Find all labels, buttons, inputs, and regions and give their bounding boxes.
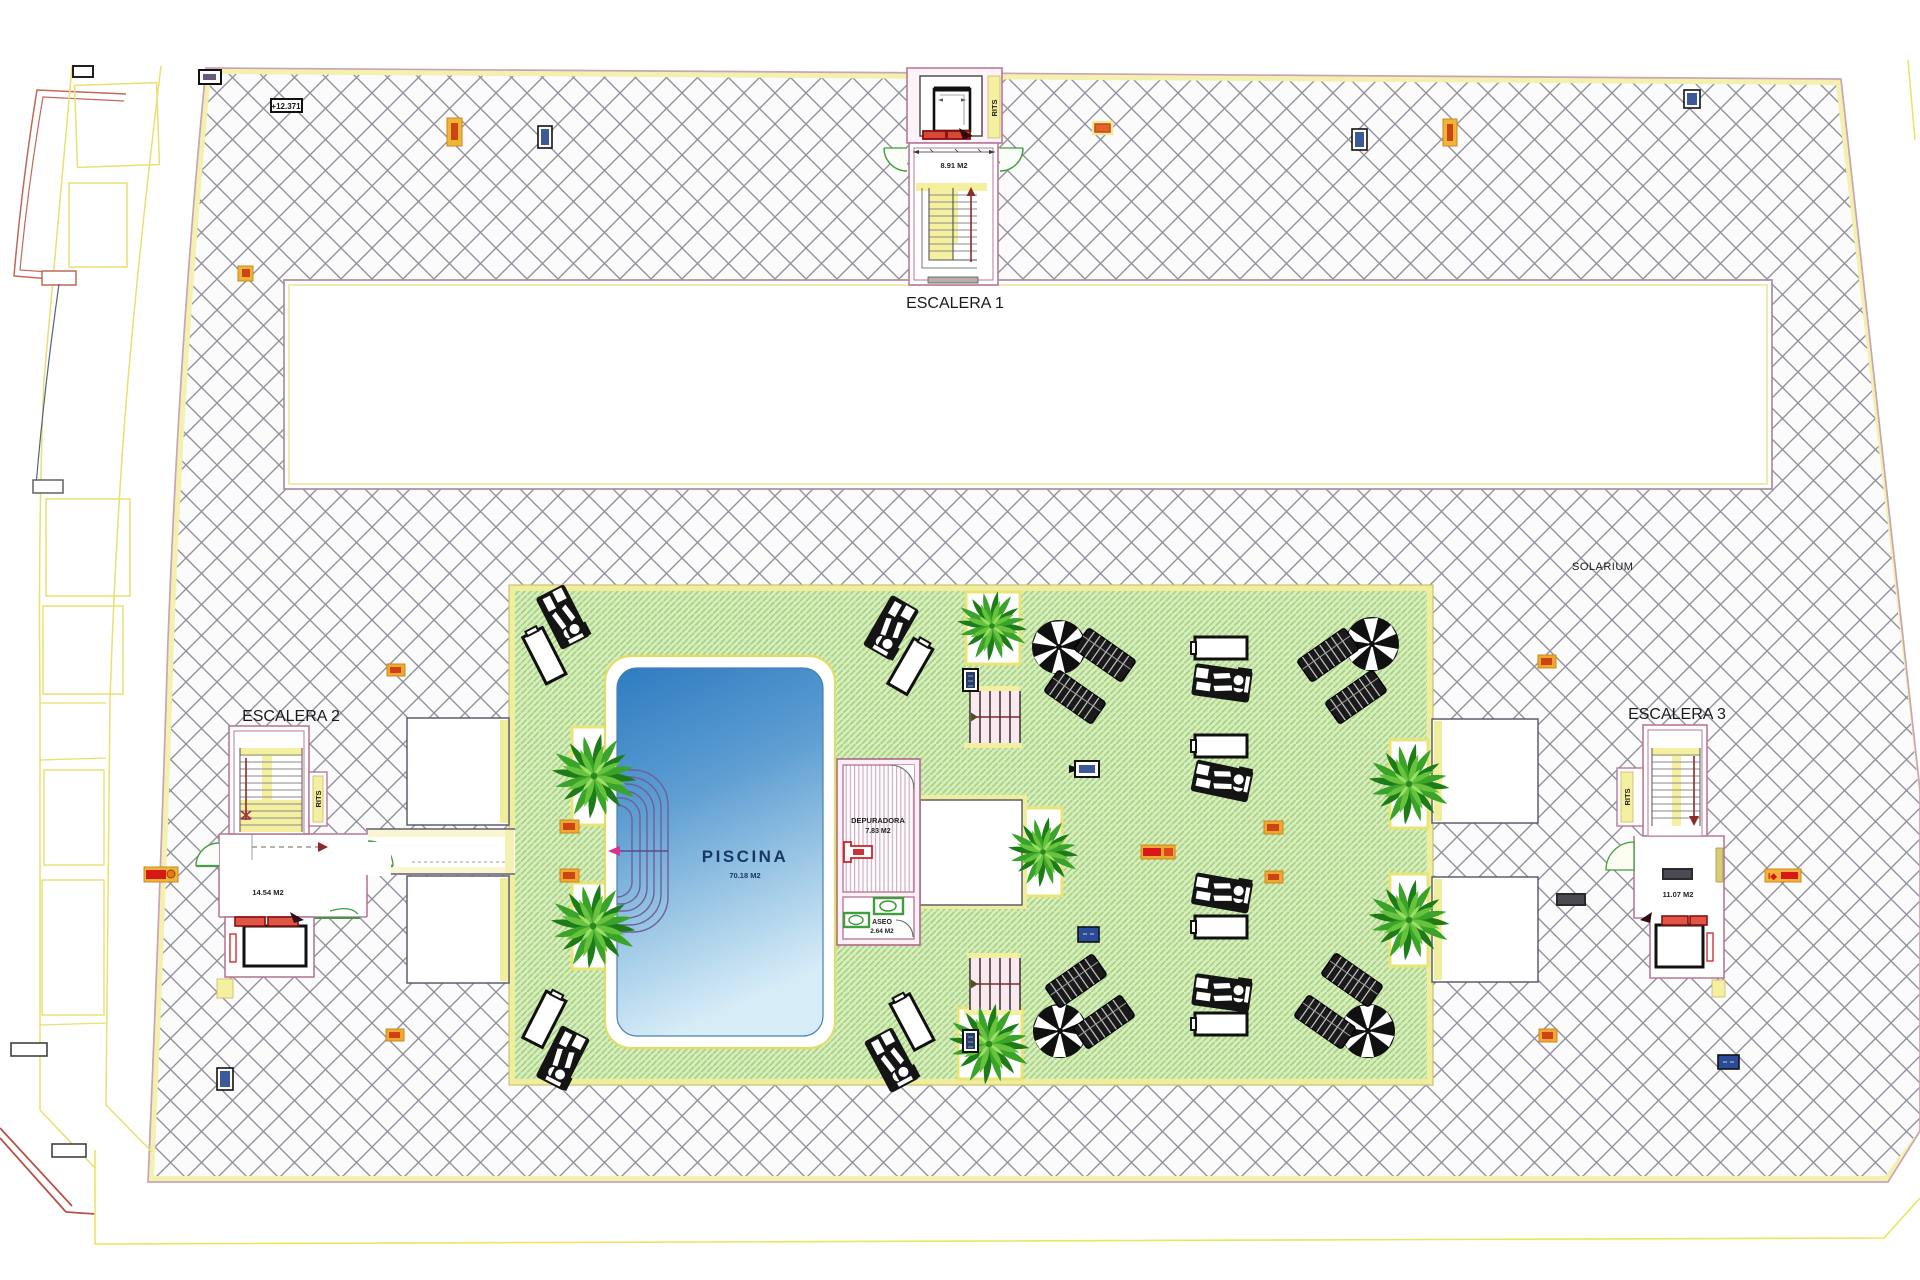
svg-text:11.07 M2: 11.07 M2	[1663, 890, 1694, 899]
svg-text:PISCINA: PISCINA	[702, 847, 788, 866]
svg-text:+12.371: +12.371	[271, 102, 301, 111]
svg-text:14.54 M2: 14.54 M2	[252, 888, 283, 897]
svg-text:I◆: I◆	[1768, 871, 1778, 881]
svg-text:RITS: RITS	[1623, 788, 1632, 805]
svg-text:DEPURADORA: DEPURADORA	[851, 816, 905, 825]
svg-text:ESCALERA 2: ESCALERA 2	[242, 708, 340, 725]
svg-text:8.91 M2: 8.91 M2	[940, 161, 967, 170]
svg-text:ESCALERA 3: ESCALERA 3	[1628, 706, 1726, 723]
svg-text:7.83 M2: 7.83 M2	[865, 828, 890, 835]
svg-text:RITS: RITS	[990, 99, 999, 116]
svg-text:ASEO: ASEO	[872, 919, 892, 926]
svg-text:SOLARIUM: SOLARIUM	[1572, 561, 1633, 573]
svg-text:RITS: RITS	[314, 790, 323, 807]
svg-text:ESCALERA 1: ESCALERA 1	[906, 295, 1004, 312]
svg-text:2.64 M2: 2.64 M2	[870, 928, 894, 935]
svg-text:70.18 M2: 70.18 M2	[729, 871, 760, 880]
